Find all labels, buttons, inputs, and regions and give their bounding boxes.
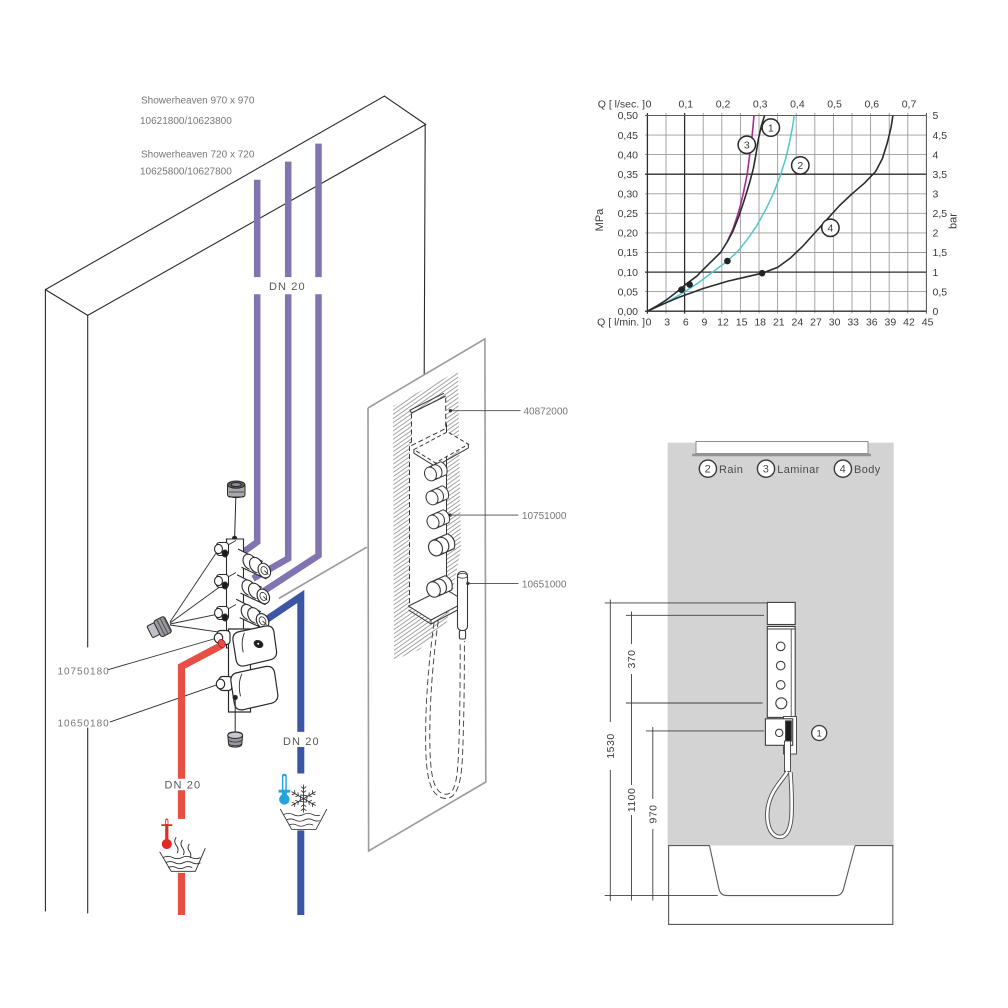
svg-text:15: 15 (736, 317, 748, 329)
svg-text:0,7: 0,7 (902, 99, 917, 111)
svg-text:0,5: 0,5 (933, 286, 948, 298)
svg-text:0,10: 0,10 (618, 267, 639, 279)
svg-text:33: 33 (847, 317, 859, 329)
svg-text:10650180: 10650180 (58, 719, 110, 730)
svg-text:3: 3 (933, 189, 939, 201)
svg-text:10751000: 10751000 (522, 511, 567, 522)
svg-text:4,5: 4,5 (933, 130, 948, 142)
svg-text:1: 1 (817, 729, 822, 740)
svg-text:0,2: 0,2 (716, 99, 731, 111)
svg-text:2: 2 (933, 228, 939, 240)
svg-text:0,45: 0,45 (618, 130, 639, 142)
svg-text:27: 27 (810, 317, 822, 329)
svg-text:36: 36 (866, 317, 878, 329)
svg-text:Q [ l/min. ]: Q [ l/min. ] (597, 317, 645, 329)
svg-text:Showerheaven 970 x 970: Showerheaven 970 x 970 (141, 96, 255, 107)
svg-text:30: 30 (829, 317, 841, 329)
svg-text:Showerheaven 720 x 720: Showerheaven 720 x 720 (141, 150, 255, 161)
svg-text:3: 3 (664, 317, 670, 329)
svg-text:0,05: 0,05 (618, 286, 639, 298)
svg-text:DN 20: DN 20 (165, 779, 202, 791)
svg-text:39: 39 (885, 317, 897, 329)
svg-text:970: 970 (647, 804, 659, 823)
svg-text:40872000: 40872000 (524, 407, 569, 418)
svg-text:45: 45 (922, 317, 934, 329)
svg-text:0,6: 0,6 (864, 99, 879, 111)
svg-text:4: 4 (840, 464, 847, 476)
svg-text:0: 0 (646, 99, 652, 111)
svg-text:24: 24 (792, 317, 804, 329)
svg-text:0,15: 0,15 (618, 247, 639, 259)
svg-text:1: 1 (933, 267, 939, 279)
svg-text:1100: 1100 (626, 788, 638, 813)
svg-text:42: 42 (903, 317, 915, 329)
svg-text:1,5: 1,5 (933, 247, 948, 259)
svg-text:2: 2 (797, 160, 803, 172)
svg-text:9: 9 (701, 317, 707, 329)
svg-text:10625800/10627800: 10625800/10627800 (140, 166, 232, 177)
svg-text:2,5: 2,5 (933, 208, 948, 220)
svg-text:bar: bar (948, 213, 960, 229)
svg-text:DN 20: DN 20 (269, 281, 306, 293)
svg-text:0,5: 0,5 (827, 99, 842, 111)
svg-text:4: 4 (933, 149, 939, 161)
svg-text:10621800/10623800: 10621800/10623800 (140, 116, 232, 127)
svg-text:0,4: 0,4 (790, 99, 805, 111)
svg-text:3,5: 3,5 (933, 169, 948, 181)
svg-text:Q [ l/sec. ]: Q [ l/sec. ] (598, 99, 645, 111)
svg-text:0,50: 0,50 (618, 110, 639, 122)
svg-text:5: 5 (933, 110, 939, 122)
svg-text:MPa: MPa (594, 208, 606, 232)
svg-text:12: 12 (717, 317, 729, 329)
svg-text:21: 21 (773, 317, 785, 329)
svg-text:4: 4 (827, 223, 833, 235)
svg-text:DN 20: DN 20 (283, 736, 320, 748)
svg-text:3: 3 (744, 140, 750, 152)
svg-text:2: 2 (705, 464, 712, 476)
svg-text:6: 6 (683, 317, 689, 329)
svg-text:0,40: 0,40 (618, 149, 639, 161)
svg-text:18: 18 (754, 317, 766, 329)
svg-text:0,25: 0,25 (618, 208, 639, 220)
svg-text:0: 0 (646, 317, 652, 329)
svg-text:0,20: 0,20 (618, 228, 639, 240)
svg-text:10651000: 10651000 (522, 579, 567, 590)
svg-text:0,35: 0,35 (618, 169, 639, 181)
svg-text:Rain: Rain (719, 464, 743, 476)
svg-text:370: 370 (626, 649, 638, 668)
svg-text:1: 1 (768, 122, 774, 134)
svg-text:Body: Body (854, 464, 881, 476)
svg-text:0,30: 0,30 (618, 189, 639, 201)
svg-text:0,3: 0,3 (753, 99, 768, 111)
svg-text:Laminar: Laminar (777, 464, 820, 476)
svg-text:1530: 1530 (605, 733, 617, 758)
svg-text:0,1: 0,1 (678, 99, 693, 111)
svg-text:3: 3 (763, 464, 770, 476)
svg-text:10750180: 10750180 (58, 666, 110, 677)
